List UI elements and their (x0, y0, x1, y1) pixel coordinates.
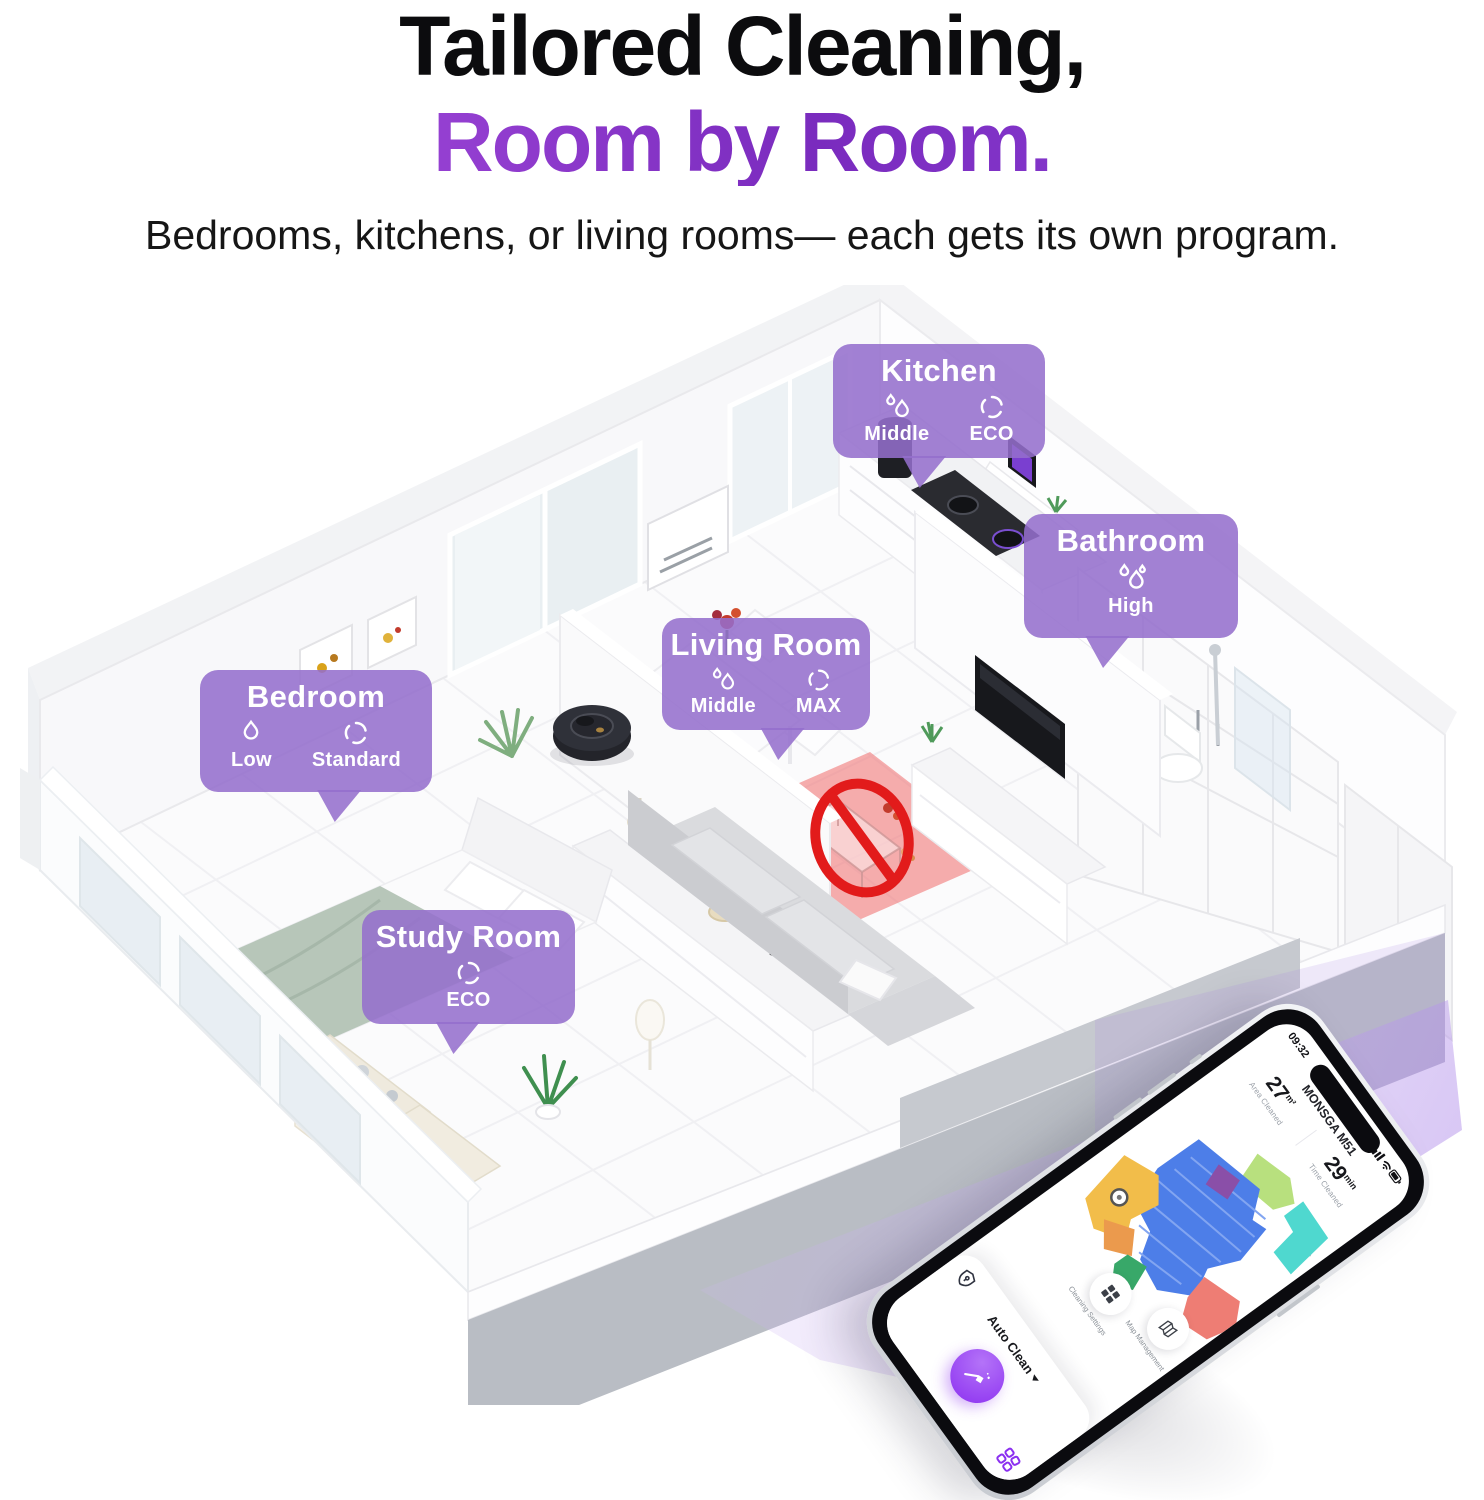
bottom-sheet: Auto Clean (874, 1247, 1098, 1493)
page-title-line1: Tailored Cleaning, (0, 2, 1484, 90)
battery-icon (1388, 1169, 1403, 1185)
room-bubble-study-room: Study Room ECO (362, 910, 575, 1024)
room-bubble-bedroom: Bedroom Low Standard (200, 670, 432, 792)
room-bubble-bathroom: Bathroom High (1024, 514, 1238, 638)
map-room-cyan (1259, 1200, 1334, 1274)
broom-icon (959, 1358, 995, 1394)
room-title: Study Room (368, 919, 569, 955)
fan-icon (341, 718, 371, 748)
page-title-line2: Room by Room. (0, 98, 1484, 186)
wifi-icon (1380, 1161, 1391, 1172)
room-title: Living Room (668, 627, 864, 663)
map-icon (1155, 1316, 1180, 1341)
room-title: Kitchen (839, 353, 1039, 389)
page-subtitle: Bedrooms, kitchens, or living rooms— eac… (0, 212, 1484, 259)
fan-icon (976, 392, 1008, 422)
room-title: Bedroom (206, 679, 426, 715)
room-title: Bathroom (1030, 523, 1232, 559)
apps-icon[interactable] (990, 1446, 1022, 1477)
toilet (1154, 754, 1202, 782)
chevron-down-icon (1030, 1375, 1039, 1384)
grid-icon (1099, 1283, 1121, 1305)
floor-lamp (636, 1000, 664, 1040)
room-bubble-kitchen: Kitchen Middle ECO (833, 344, 1045, 458)
fan-icon (453, 958, 485, 988)
water-drop-icon (236, 718, 266, 748)
header: Tailored Cleaning, Room by Room. Bedroom… (0, 0, 1484, 259)
marketing-graphic: Tailored Cleaning, Room by Room. Bedroom… (0, 0, 1484, 1500)
water-drops-icon (1113, 562, 1149, 594)
robot-vacuum (550, 705, 634, 766)
water-drops-icon (707, 666, 739, 694)
water-drops-icon (880, 392, 914, 422)
fan-icon (804, 666, 834, 694)
room-bubble-living-room: Living Room Middle MAX (662, 618, 870, 730)
